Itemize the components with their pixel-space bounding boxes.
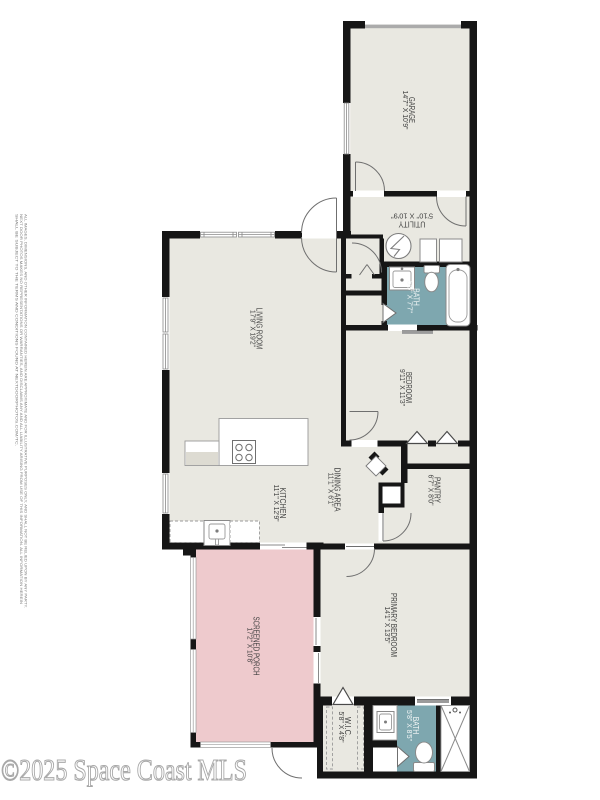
svg-text:5'10" X 10'9": 5'10" X 10'9" [390,212,433,219]
svg-text:14'7" X 10'9": 14'7" X 10'9" [401,91,408,131]
svg-text:5'8" X 4'8": 5'8" X 4'8" [337,712,344,743]
svg-text:11'1" X 12'9": 11'1" X 12'9" [272,485,279,522]
svg-text:©2025 Space Coast MLS: ©2025 Space Coast MLS [1,752,247,787]
svg-text:5'5" X 7'7": 5'5" X 7'7" [405,281,412,314]
svg-text:17'2" X 10'8": 17'2" X 10'8" [245,628,252,665]
svg-text:SHALL BE SUBJECT TO THE TERMS: SHALL BE SUBJECT TO THE TERMS AND CONDIT… [15,214,20,446]
svg-text:6'7" X 8'0": 6'7" X 8'0" [426,475,433,506]
svg-text:UTILITY: UTILITY [398,220,425,229]
svg-text:17'9" X 19'2": 17'9" X 19'2" [248,310,255,347]
svg-text:9'11" X 11'3": 9'11" X 11'3" [398,369,405,406]
svg-text:5'8" X 8'5": 5'8" X 8'5" [405,710,412,741]
svg-text:14'1" X 13'5": 14'1" X 13'5" [383,607,390,644]
svg-text:11'1" X 6'1": 11'1" X 6'1" [326,473,333,507]
